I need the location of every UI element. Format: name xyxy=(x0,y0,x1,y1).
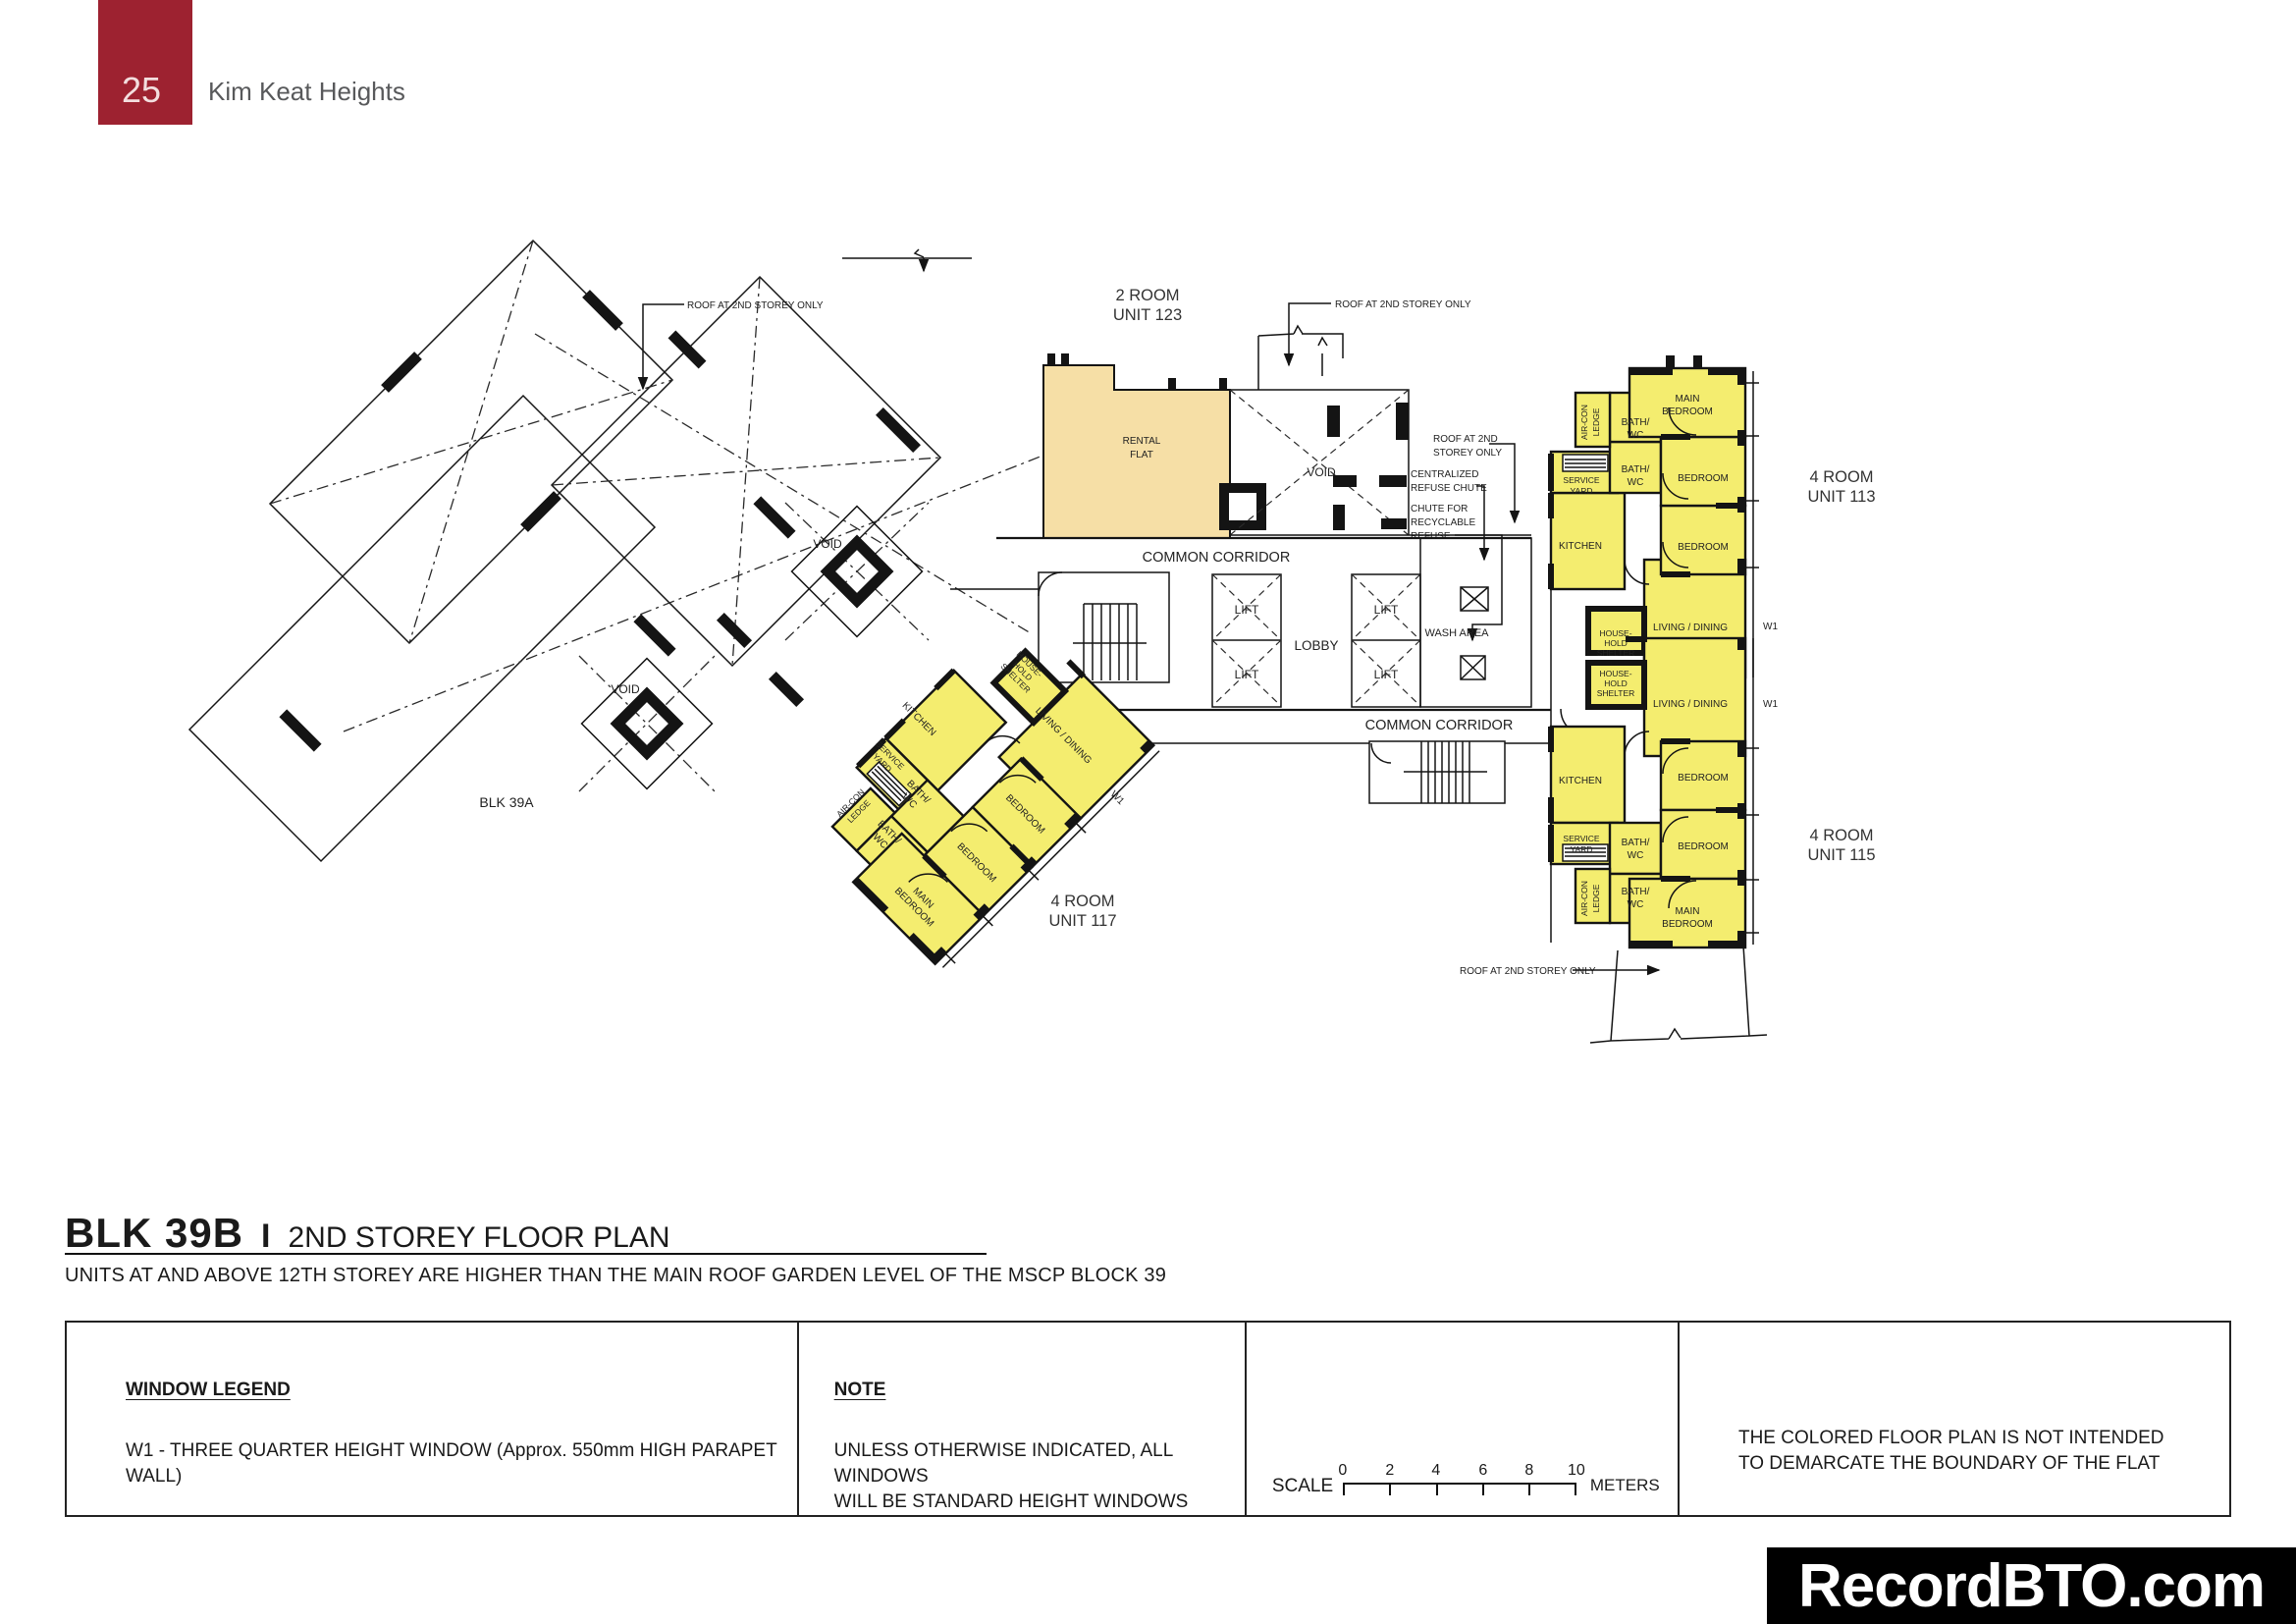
room-label: WC xyxy=(1628,850,1644,861)
title-note: UNITS AT AND ABOVE 12TH STOREY ARE HIGHE… xyxy=(65,1265,1166,1287)
window-label: W1 xyxy=(1763,699,1778,710)
room-label: BEDROOM xyxy=(1678,773,1729,784)
room-label: BEDROOM xyxy=(1662,919,1713,930)
lift-label: LIFT xyxy=(1374,668,1399,681)
disclaimer-cell: THE COLORED FLOOR PLAN IS NOT INTENDEDTO… xyxy=(1680,1323,2229,1515)
room-label: BEDROOM xyxy=(1678,473,1729,484)
meters-label: METERS xyxy=(1590,1476,1660,1495)
roof-label: ROOF AT 2ND STOREY ONLY xyxy=(1335,299,1471,310)
room-label: MAIN xyxy=(1676,906,1700,917)
annotation: REFUSE xyxy=(1411,531,1451,542)
unit-123-rental-flat: RENTAL FLAT 2 ROOM UNIT 123 xyxy=(1043,287,1261,538)
note-title: NOTE xyxy=(834,1380,1225,1401)
room-label: SHELTER xyxy=(1597,688,1635,698)
room-label: MAIN xyxy=(1676,394,1700,405)
watermark-text: RecordBTO.com xyxy=(1798,1551,2265,1621)
scale-tick-label: 6 xyxy=(1478,1462,1487,1480)
window-label: W1 xyxy=(1763,622,1778,632)
room-label: BEDROOM xyxy=(1662,406,1713,417)
scale-tick-label: 0 xyxy=(1338,1462,1347,1480)
room-label: BEDROOM xyxy=(1678,841,1729,852)
roof-label: ROOF AT 2ND STOREY ONLY xyxy=(1460,966,1596,977)
room-label: SERVICE xyxy=(1563,834,1599,843)
room-label: BATH/ xyxy=(1622,838,1650,848)
annotation: CHUTE FOR xyxy=(1411,504,1468,514)
room-label: LEDGE xyxy=(1591,884,1601,912)
bottom-roof: ROOF AT 2ND STOREY ONLY xyxy=(1460,946,1767,1043)
title-rule xyxy=(65,1253,987,1255)
title-separator: I xyxy=(261,1218,270,1256)
window-label: W1 xyxy=(1108,789,1127,808)
window-legend-body: W1 - THREE QUARTER HEIGHT WINDOW (Approx… xyxy=(126,1438,777,1489)
room-label: LIVING / DINING xyxy=(1653,623,1728,633)
lift-label: LIFT xyxy=(1235,603,1259,617)
room-label: HOLD xyxy=(1604,678,1628,688)
room-label: BEDROOM xyxy=(1678,542,1729,553)
watermark-banner: RecordBTO.com xyxy=(1767,1547,2296,1624)
scale-ruler: 0 2 4 6 8 10 xyxy=(1343,1462,1576,1497)
lobby-label: LOBBY xyxy=(1294,638,1338,653)
wash-area-label: WASH AREA xyxy=(1425,627,1490,639)
unit-label: UNIT 117 xyxy=(1048,912,1116,930)
unit-label: 4 ROOM xyxy=(1809,827,1873,844)
legend-table: WINDOW LEGEND W1 - THREE QUARTER HEIGHT … xyxy=(65,1321,2231,1517)
disclaimer-body: THE COLORED FLOOR PLAN IS NOT INTENDEDTO… xyxy=(1738,1426,2210,1477)
room-label: WC xyxy=(1628,899,1644,910)
room-label: WC xyxy=(1628,477,1644,488)
room-label: RENTAL xyxy=(1123,436,1161,447)
room-label: YARD xyxy=(1571,844,1593,854)
room-label: SHELTER xyxy=(1597,648,1635,658)
room-label: BATH/ xyxy=(1622,464,1650,475)
block-title: BLK 39B xyxy=(65,1210,243,1257)
room-label: KITCHEN xyxy=(1559,541,1602,552)
annotation: RECYCLABLE xyxy=(1411,517,1475,528)
annotation: STOREY ONLY xyxy=(1433,448,1502,459)
room-label: BATH/ xyxy=(1622,417,1650,428)
corridor-label: COMMON CORRIDOR xyxy=(1143,550,1291,566)
room-label: SERVICE xyxy=(1563,475,1599,485)
room-label: WC xyxy=(1628,430,1644,441)
room-label: HOUSE- xyxy=(1599,669,1631,678)
unit-label: 4 ROOM xyxy=(1809,468,1873,486)
room-label: AIR-CON xyxy=(1579,881,1589,916)
annotation: CENTRALIZED xyxy=(1411,469,1478,480)
title-block: BLK 39B I 2ND STOREY FLOOR PLAN xyxy=(65,1210,1635,1257)
unit-117: KITCHEN HOUSE- HOLD SHELTER LIVING / DIN… xyxy=(795,605,1164,974)
room-label: AIR-CON xyxy=(1579,405,1589,440)
room-label: LIVING / DINING xyxy=(1653,699,1728,710)
room-label: YARD xyxy=(1571,486,1593,496)
unit-113: MAIN BEDROOM BATH/ WC AIR-CON LEDGE BATH… xyxy=(1548,355,1876,679)
unit-label: 4 ROOM xyxy=(1050,893,1114,910)
annotation: REFUSE CHUTE xyxy=(1411,483,1487,494)
window-legend-cell: WINDOW LEGEND W1 - THREE QUARTER HEIGHT … xyxy=(67,1323,799,1515)
unit-label: UNIT 123 xyxy=(1113,306,1182,324)
room-label: KITCHEN xyxy=(1559,776,1602,786)
scale-tick-label: 8 xyxy=(1524,1462,1533,1480)
lift-label: LIFT xyxy=(1374,603,1399,617)
annotation: ROOF AT 2ND xyxy=(1433,434,1498,445)
scale-tick-label: 4 xyxy=(1431,1462,1440,1480)
note-body: UNLESS OTHERWISE INDICATED, ALL WINDOWSW… xyxy=(834,1438,1225,1515)
roof-label: ROOF AT 2ND STOREY ONLY xyxy=(687,300,824,311)
scale-tick-label: 10 xyxy=(1568,1462,1585,1480)
unit-label: UNIT 115 xyxy=(1807,846,1875,864)
room-label: LEDGE xyxy=(1591,407,1601,436)
room-label: HOLD xyxy=(1604,638,1628,648)
void-label: VOID xyxy=(611,682,640,696)
unit-label: UNIT 113 xyxy=(1807,488,1875,506)
scale-label: SCALE xyxy=(1272,1476,1333,1497)
room-label: BATH/ xyxy=(1622,887,1650,897)
unit-115: HOUSE- HOLD SHELTER LIVING / DINING W1 K… xyxy=(1548,636,1876,947)
void-label: VOID xyxy=(1307,465,1336,479)
lift-label: LIFT xyxy=(1235,668,1259,681)
blk39a-label: BLK 39A xyxy=(479,794,534,810)
scale-tick-label: 2 xyxy=(1385,1462,1394,1480)
floor-plan-drawing: VOID VOID BLK 39A ROOF AT 2ND STOREY ONL… xyxy=(0,0,2296,1139)
corridor-label: COMMON CORRIDOR xyxy=(1365,718,1514,733)
note-cell: NOTE UNLESS OTHERWISE INDICATED, ALL WIN… xyxy=(799,1323,1247,1515)
void-label: VOID xyxy=(813,537,842,551)
storey-title: 2ND STOREY FLOOR PLAN xyxy=(289,1221,670,1255)
window-legend-title: WINDOW LEGEND xyxy=(126,1380,777,1401)
room-label: FLAT xyxy=(1130,450,1153,460)
scale-cell: SCALE 0 2 4 6 8 10 METERS xyxy=(1247,1323,1680,1515)
unit-label: 2 ROOM xyxy=(1115,287,1179,304)
